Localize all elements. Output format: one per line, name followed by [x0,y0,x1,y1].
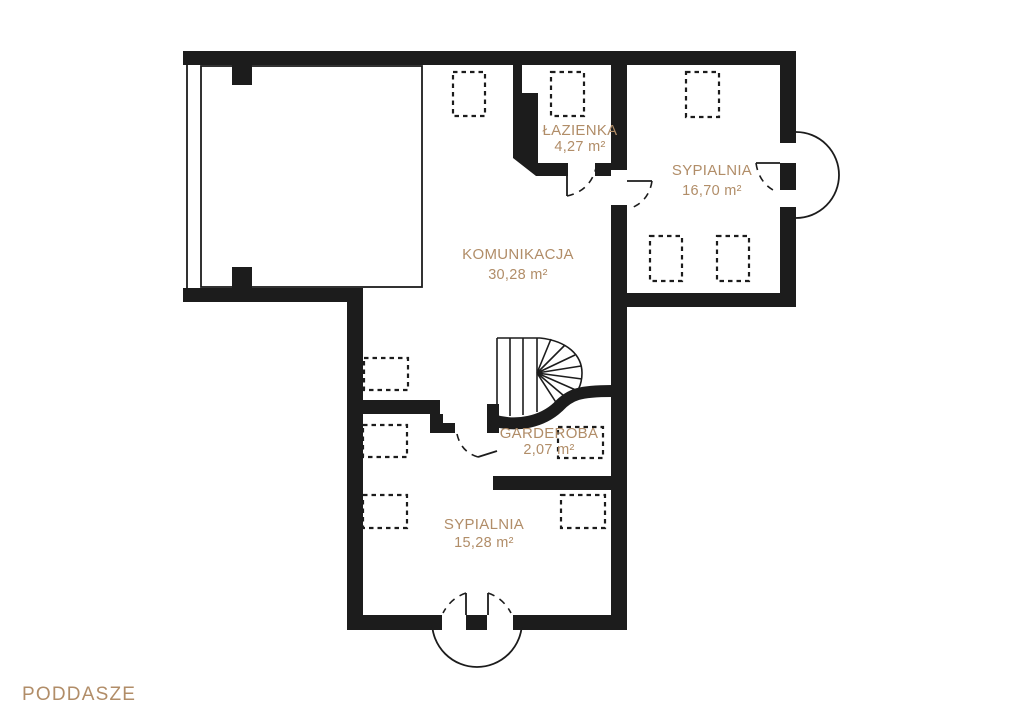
room-label-sypialnia-dolna: SYPIALNIA 15,28 m² [444,516,524,552]
door-swing-icon [457,434,497,457]
room-label-sypialnia-gorna: SYPIALNIA 16,70 m² [672,161,752,201]
room-area: 30,28 m² [462,265,574,285]
roof-window-icon [650,236,682,281]
room-area: 16,70 m² [672,181,752,201]
void-bottom-wall [183,288,363,302]
roof-window-icon [561,495,605,528]
bathroom-door-jamb [595,163,611,176]
room-name: ŁAZIENKA [543,122,618,139]
roof-window-icon [363,495,407,528]
room-label-komunikacja: KOMUNIKACJA 30,28 m² [462,245,574,285]
roof-window-icon [364,358,408,390]
void-top-wall-stub [232,65,252,85]
top-exterior-wall [183,51,796,65]
bottom-exterior-wall-left [347,615,442,630]
right-exterior-wall-mid [780,163,796,190]
floor-title: PODDASZE [22,684,136,706]
room-label-garderoba: GARDEROBA 2,07 m² [500,425,599,459]
bathroom-wall-column [513,65,568,176]
bedroom2-door-jamb-a [430,414,443,433]
bottom-door-pier [466,615,487,630]
room-name: GARDEROBA [500,425,599,442]
floor-plan-drawing [0,0,1024,725]
doors [432,132,839,667]
door-swing-icon [567,163,596,196]
roof-window-icon [717,236,749,281]
right-exterior-wall-lower [780,207,796,307]
room-name: SYPIALNIA [444,516,524,534]
void-outline [201,66,422,287]
right-exterior-wall-upper [780,65,796,143]
bedroom2-door-jamb-b [443,423,455,433]
door-swing-icon [627,181,652,208]
divider-wall-lower [611,205,627,630]
void-bottom-wall-stub [232,267,252,288]
left-exterior-wall [347,288,363,630]
roof-window-icon [686,72,719,117]
bottom-exterior-wall-right [513,615,627,630]
bedroom1-bottom-wall [611,293,796,307]
open-void-area [187,65,422,288]
roof-window-icon [551,72,584,116]
room-label-lazienka: ŁAZIENKA 4,27 m² [543,122,618,156]
balcony-door-icon [756,132,839,218]
roof-window-icon [363,425,407,457]
bedroom2-top-wall [358,400,440,414]
room-area: 4,27 m² [543,139,618,156]
roof-window-icon [453,72,485,116]
room-name: SYPIALNIA [672,161,752,181]
floor-plan-page: ŁAZIENKA 4,27 m² SYPIALNIA 16,70 m² KOMU… [0,0,1024,725]
garderoba-bottom-wall [493,476,611,490]
room-area: 2,07 m² [500,442,599,459]
room-area: 15,28 m² [444,534,524,552]
room-name: KOMUNIKACJA [462,245,574,265]
